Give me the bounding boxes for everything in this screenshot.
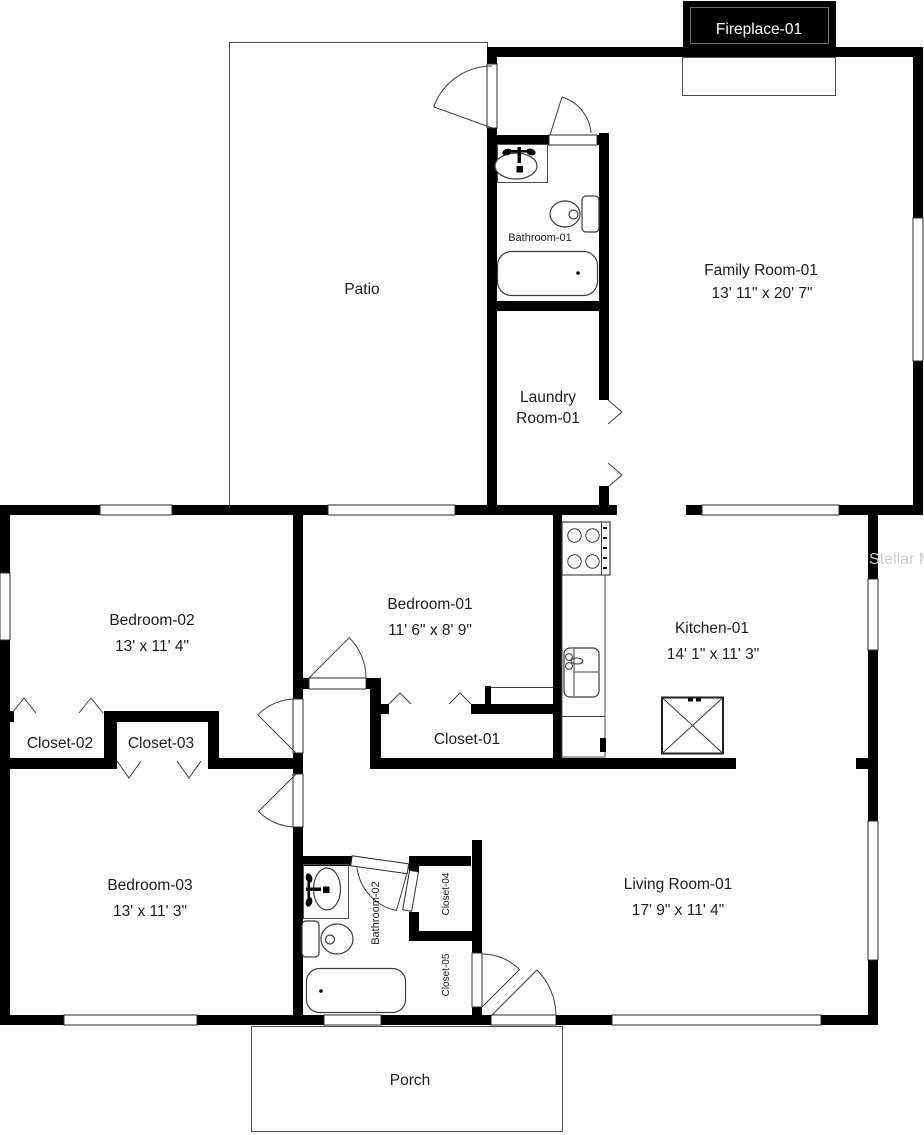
- svg-text:11' 6" x 8' 9": 11' 6" x 8' 9": [388, 622, 472, 639]
- svg-text:Closet-04: Closet-04: [441, 872, 452, 915]
- svg-text:13' 11" x 20' 7": 13' 11" x 20' 7": [711, 285, 812, 302]
- svg-text:Stellar MLS: Stellar MLS: [869, 551, 924, 568]
- svg-text:14' 1" x 11' 3": 14' 1" x 11' 3": [667, 646, 759, 663]
- svg-text:Kitchen-01: Kitchen-01: [675, 620, 749, 637]
- svg-text:13' x 11' 3": 13' x 11' 3": [113, 903, 187, 920]
- svg-text:Room-01: Room-01: [516, 410, 580, 427]
- svg-text:Family Room-01: Family Room-01: [704, 262, 818, 279]
- svg-text:Living Room-01: Living Room-01: [624, 876, 733, 893]
- svg-text:Fireplace-01: Fireplace-01: [716, 21, 802, 38]
- svg-text:Bedroom-03: Bedroom-03: [107, 877, 192, 894]
- svg-text:17' 9" x 11' 4": 17' 9" x 11' 4": [632, 902, 724, 919]
- svg-text:13' x 11' 4": 13' x 11' 4": [115, 638, 189, 655]
- svg-text:Bedroom-01: Bedroom-01: [387, 596, 472, 613]
- svg-text:Closet-03: Closet-03: [128, 735, 194, 752]
- svg-text:Patio: Patio: [344, 281, 379, 298]
- svg-text:Bathroom-01: Bathroom-01: [508, 232, 572, 244]
- svg-text:Porch: Porch: [390, 1072, 431, 1089]
- svg-text:Closet-05: Closet-05: [441, 953, 452, 996]
- svg-text:Laundry: Laundry: [520, 389, 576, 406]
- svg-text:Closet-01: Closet-01: [434, 731, 500, 748]
- svg-text:Bedroom-02: Bedroom-02: [109, 612, 194, 629]
- svg-text:Bathroom-02: Bathroom-02: [370, 881, 382, 945]
- svg-text:Closet-02: Closet-02: [27, 735, 93, 752]
